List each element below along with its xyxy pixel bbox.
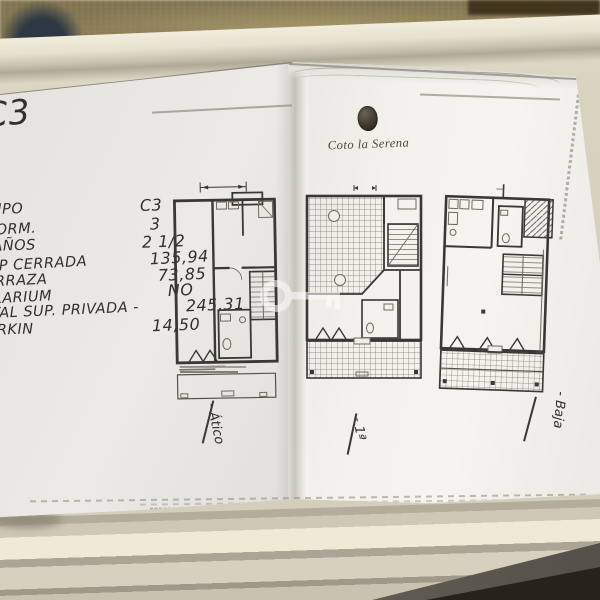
spec-label: DORM. (0, 221, 37, 239)
spec-label: PARKIN (0, 321, 34, 339)
key-watermark-icon (256, 272, 356, 316)
logo: Coto la Serena (319, 104, 417, 153)
floor-plan-baja (434, 182, 559, 399)
spec-label: BAÑOS (0, 237, 36, 255)
spec-value: 3 (149, 214, 161, 233)
background-shadow (468, 0, 600, 15)
spec-label: TIPO (0, 201, 24, 218)
photo-of-floorplan-document: C3 TIPO C3 DORM. 3 BAÑOS 2 1/2 SUP CERRA… (0, 0, 600, 600)
pinecone-emblem-icon (357, 106, 378, 132)
corner-code: C3 (0, 92, 32, 136)
spec-value: C3 (140, 195, 163, 215)
